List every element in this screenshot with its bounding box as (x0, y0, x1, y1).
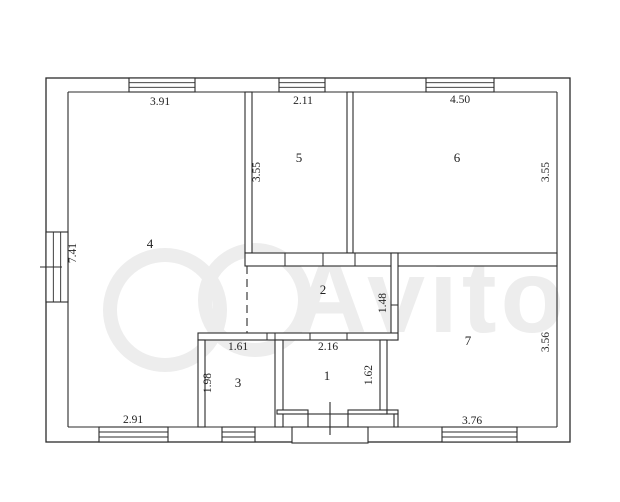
window-top-room6 (426, 78, 494, 92)
wall-step-h (387, 410, 398, 414)
wall-room5-room6 (347, 92, 353, 253)
dimension-label: 1.62 (363, 365, 375, 385)
window-top-room5 (279, 78, 325, 92)
window-bottom-room3 (222, 427, 255, 442)
wall-room1-right (380, 340, 387, 414)
wall-step-v (394, 414, 398, 427)
dimension-label: 1.98 (202, 373, 214, 393)
dimension-label: 4.50 (450, 94, 470, 106)
dimension-label: 3.56 (540, 332, 552, 352)
dimension-label: 3.76 (462, 415, 482, 427)
window-bottom-room4 (99, 427, 168, 442)
wall-rooms31-top (198, 333, 398, 340)
dimension-label: 1.48 (377, 293, 389, 313)
window-top-room4 (129, 78, 195, 92)
dimension-label: 2.11 (293, 95, 313, 107)
room-label-2: 2 (320, 282, 327, 297)
floor-plan-page: Avito 45623173.912.114.503.553.557.411.4… (0, 0, 620, 502)
room-label-5: 5 (296, 150, 303, 165)
window-bottom-room7 (442, 427, 517, 442)
dimension-label: 3.55 (251, 162, 263, 182)
wall-room1-bottom-r (348, 410, 387, 414)
room-label-3: 3 (235, 375, 242, 390)
dimension-label: 3.91 (150, 96, 170, 108)
room-label-4: 4 (147, 236, 154, 251)
dimension-label: 7.41 (67, 243, 79, 263)
room-label-7: 7 (465, 333, 472, 348)
floor-plan-drawing: Avito 45623173.912.114.503.553.557.411.4… (0, 0, 620, 502)
room-label-1: 1 (324, 368, 331, 383)
entrance-threshold (308, 414, 348, 427)
dimension-label: 2.91 (123, 414, 143, 426)
wall-room1-bottom-l (277, 410, 308, 414)
dimension-label: 1.61 (228, 341, 248, 353)
wall-corridor-right (391, 253, 398, 340)
wall-corridor-top (245, 253, 557, 266)
dimension-label: 2.16 (318, 341, 338, 353)
dimension-label: 3.55 (540, 162, 552, 182)
room-label-6: 6 (454, 150, 461, 165)
walls-layer (46, 78, 570, 442)
